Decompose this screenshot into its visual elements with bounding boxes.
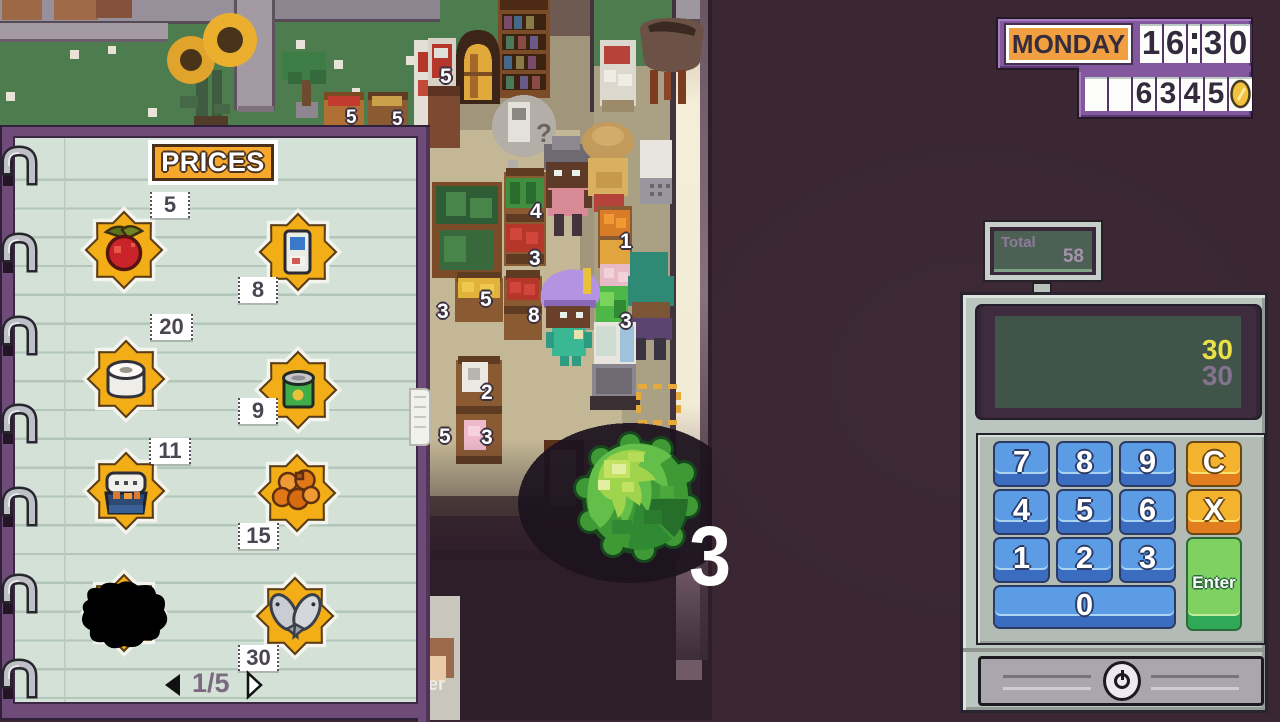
svg-text:er: er [428, 674, 445, 694]
svg-text:?: ? [536, 118, 552, 148]
